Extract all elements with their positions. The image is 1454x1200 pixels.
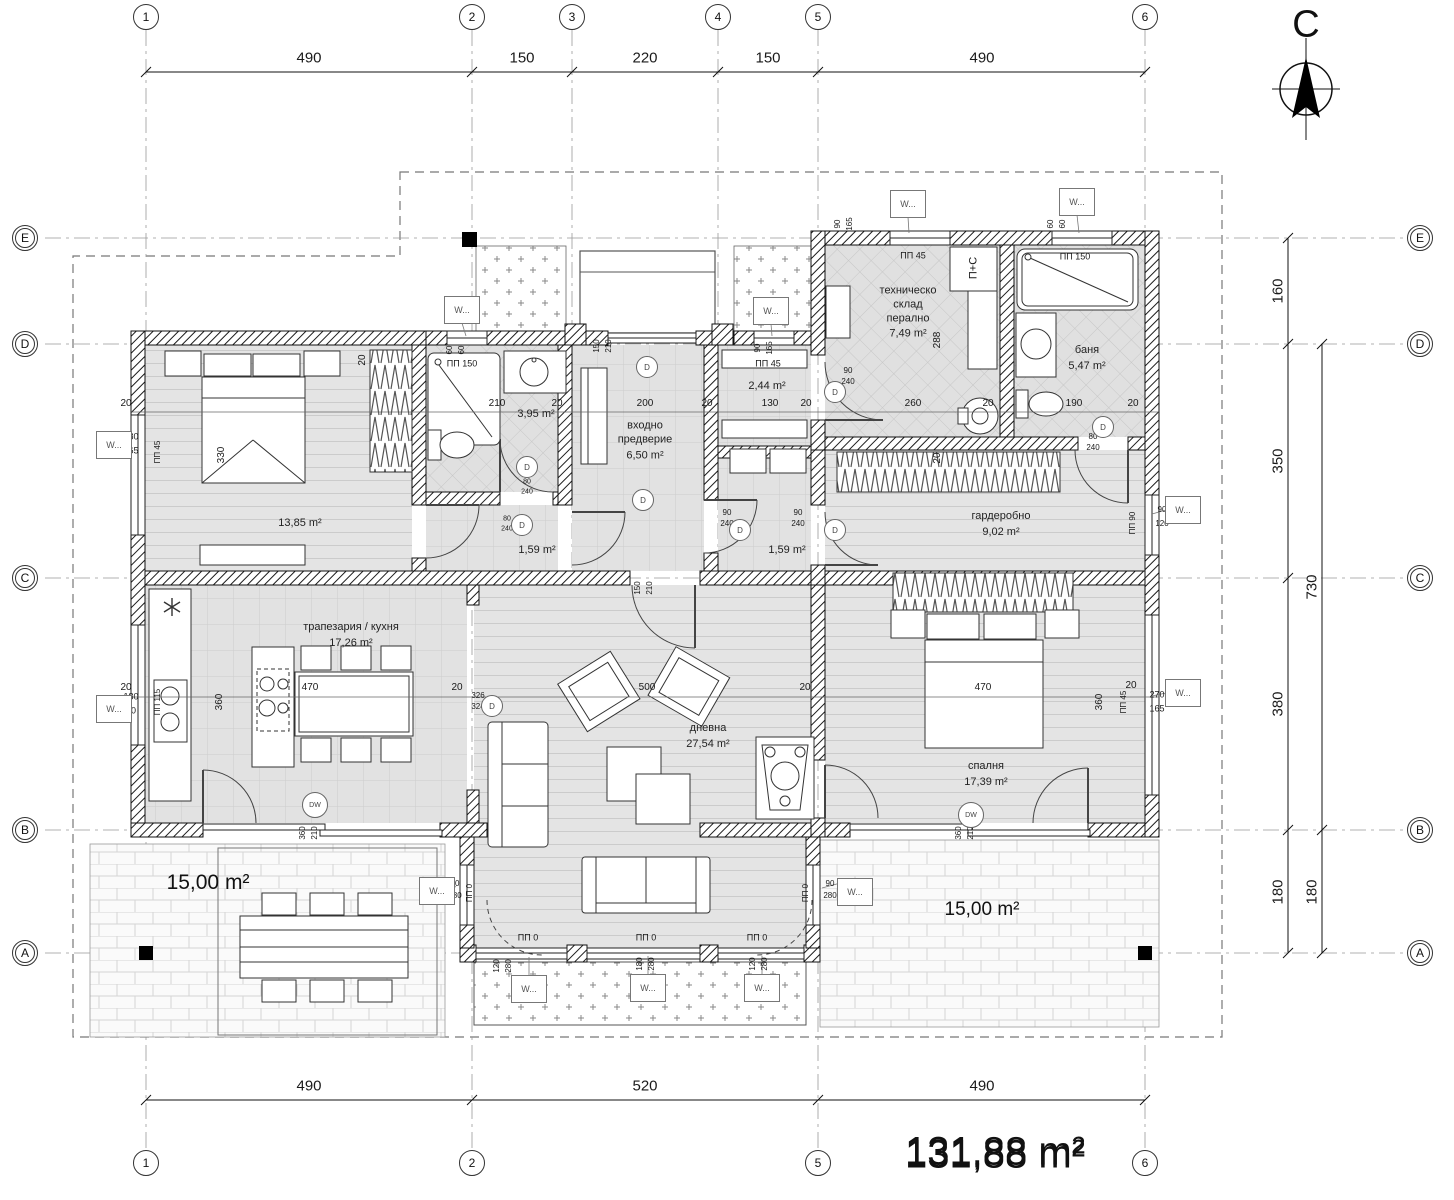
window-tag: W... [419, 877, 455, 905]
grid-bubble-ring [1410, 820, 1430, 840]
sofa-left [488, 722, 548, 847]
dim-label: 490 [969, 51, 994, 66]
grid-bubble-row: D [1407, 331, 1433, 357]
room-area: 1,59 m² [518, 544, 555, 556]
dim-annotation: 130 [762, 399, 779, 409]
grid-bubble-ring [1410, 228, 1430, 248]
dim-annotation: 210 [967, 826, 975, 839]
door-tag: D [824, 519, 846, 541]
room-label: гардеробно9,02 m² [971, 510, 1030, 538]
hall-cabinet [730, 449, 766, 473]
room-label: 2,44 m² [748, 378, 785, 392]
grid-bubble-col: 6 [1132, 1150, 1158, 1176]
door-tag: D [1092, 416, 1114, 438]
grid-bubble-row: E [12, 225, 38, 251]
dim-annotation: 240 [521, 489, 533, 496]
room-name: гардеробно [971, 510, 1030, 524]
dim-annotation: 210 [311, 826, 319, 839]
dim-label: 490 [296, 51, 321, 66]
dim-annotation: 288 [933, 332, 943, 349]
dim-annotation: ПП 90 [1129, 512, 1137, 535]
room-name: техническо склад перално [880, 284, 937, 325]
tech-cabinet [826, 286, 850, 338]
room-name: баня [1068, 344, 1105, 358]
dim-label: 180 [1271, 879, 1286, 904]
dim-annotation: 20 [551, 399, 562, 409]
dim-label: 180 [1305, 879, 1320, 904]
dim-annotation: 330 [217, 447, 227, 464]
dining-table [295, 646, 413, 762]
terrace-table [240, 893, 408, 1002]
sofa-bottom [582, 857, 710, 913]
dim-annotation: 80 [523, 479, 531, 486]
dim-annotation: 90 [826, 880, 835, 888]
dim-annotation: ПП 150 [1060, 253, 1090, 262]
dim-annotation: 210 [605, 339, 613, 352]
dim-annotation: ПП 0 [636, 934, 656, 943]
window-tag: W... [837, 878, 873, 906]
dim-annotation: 20 [800, 399, 811, 409]
door-tag: D [729, 519, 751, 541]
dim-annotation: 360 [215, 694, 225, 711]
floor-plan-canvas: С 131,88 m² 1122345566EEDDCCBBAA49015022… [0, 0, 1454, 1200]
room-name: трапезария / кухня [303, 621, 399, 635]
dim-annotation: 60 [458, 346, 466, 355]
dim-annotation: 120 [749, 957, 757, 970]
dim-annotation: 260 [905, 399, 922, 409]
room-label: трапезария / кухня17,26 m² [303, 621, 399, 649]
door-tag: D [516, 456, 538, 478]
room-area: 17,26 m² [303, 637, 399, 649]
grid-bubble-row: B [12, 817, 38, 843]
dim-annotation: 20 [120, 399, 131, 409]
dim-annotation: 20 [120, 683, 131, 693]
grid-bubble-ring [15, 228, 35, 248]
dim-annotation: 20 [451, 683, 462, 693]
dim-annotation: 60 [446, 346, 454, 355]
dim-annotation: ПП 45 [755, 360, 780, 369]
dim-annotation: 190 [1066, 399, 1083, 409]
room-label: входно предверие6,50 m² [618, 419, 673, 461]
window-tag: W... [444, 296, 480, 324]
window-tag: W... [96, 695, 132, 723]
grid-bubble-ring [1410, 943, 1430, 963]
dim-annotation: 165 [766, 341, 774, 354]
toilet-shower-room [428, 430, 474, 460]
dim-annotation: 360 [955, 826, 963, 839]
room-name: спалня [964, 760, 1007, 774]
dim-annotation: 60 [1047, 220, 1055, 229]
door-tag: DW [302, 792, 328, 818]
wardrobe-rack-bedroom-top [370, 350, 412, 472]
grid-bubble-row: A [12, 940, 38, 966]
dim-annotation: 90 [723, 509, 732, 517]
window-tag: W... [890, 190, 926, 218]
door-tag: DW [958, 802, 984, 828]
grid-bubble-ring [1410, 334, 1430, 354]
dim-label: 150 [755, 51, 780, 66]
dim-annotation: 280 [761, 957, 769, 970]
dim-annotation: ПП 150 [447, 360, 477, 369]
room-label: баня5,47 m² [1068, 344, 1105, 372]
dim-label: 520 [632, 1079, 657, 1094]
dim-annotation: 470 [302, 683, 319, 693]
dim-annotation: 240 [791, 520, 804, 528]
dim-annotation: 20 [1127, 399, 1138, 409]
room-label: техническо склад перално7,49 m² [880, 284, 937, 339]
dim-annotation: П+С [969, 257, 980, 279]
toilet-bath [1016, 390, 1063, 418]
dim-annotation: 210 [489, 399, 506, 409]
grid-bubble-ring [15, 568, 35, 588]
fireplace [756, 737, 814, 819]
room-area: 1,59 m² [768, 544, 805, 556]
dim-annotation: 60 [1059, 220, 1067, 229]
grid-bubble-col: 1 [133, 1150, 159, 1176]
grid-bubble-col: 5 [805, 4, 831, 30]
dim-annotation: 150 [593, 339, 601, 352]
plan-drawing [0, 0, 1454, 1200]
grid-bubble-row: B [1407, 817, 1433, 843]
wardrobe-rack-bedroom [893, 573, 1073, 612]
dim-annotation: 80 [503, 516, 511, 523]
dim-label: 490 [296, 1079, 321, 1094]
grid-bubble-col: 6 [1132, 4, 1158, 30]
door-tag: D [481, 695, 503, 717]
window-tag: W... [1165, 679, 1201, 707]
room-area: 17,39 m² [964, 776, 1007, 788]
grid-bubble-col: 3 [559, 4, 585, 30]
door-tag: D [511, 514, 533, 536]
room-label: 1,59 m² [768, 542, 805, 556]
room-area: 2,44 m² [748, 380, 785, 392]
dim-annotation: 150 [634, 581, 642, 594]
kitchen-island [252, 647, 294, 767]
dim-annotation: 280 [505, 959, 513, 972]
dim-annotation: 90 [834, 220, 842, 229]
area-label: 15,00 m² [945, 899, 1020, 921]
room-name: дневна [686, 722, 729, 736]
dim-annotation: 120 [493, 959, 501, 972]
dim-annotation: ПП 45 [1120, 691, 1128, 714]
dim-annotation: 20 [358, 354, 368, 365]
room-area: 7,49 m² [880, 328, 937, 340]
door-tag: D [636, 356, 658, 378]
dim-label: 490 [969, 1079, 994, 1094]
dim-annotation: 280 [648, 957, 656, 970]
grid-bubble-col: 4 [705, 4, 731, 30]
grid-bubble-row: D [12, 331, 38, 357]
grid-bubble-col: 5 [805, 1150, 831, 1176]
dim-annotation: ПП 115 [154, 689, 162, 715]
dim-annotation: 90 [794, 509, 803, 517]
dim-annotation: 180 [636, 957, 644, 970]
dim-label: 730 [1305, 574, 1320, 599]
closet-shelf [722, 420, 807, 438]
room-name: входно предверие [618, 419, 673, 447]
hall-closet [581, 368, 607, 464]
dim-annotation: 210 [646, 581, 654, 594]
dim-annotation: ПП 0 [802, 884, 810, 902]
dim-label: 350 [1271, 448, 1286, 473]
dim-annotation: 360 [299, 826, 307, 839]
window-tag: W... [96, 431, 132, 459]
grid-bubble-ring [15, 334, 35, 354]
area-label: 131,88 m² [905, 1133, 1085, 1178]
window-tag: W... [630, 974, 666, 1002]
room-area: 9,02 m² [971, 526, 1030, 538]
window-tag: W... [511, 975, 547, 1003]
grid-bubble-col: 1 [133, 4, 159, 30]
door-tag: D [632, 489, 654, 511]
room-label: 1,59 m² [518, 542, 555, 556]
wardrobe-rack [837, 452, 1060, 492]
dim-annotation: 360 [1095, 694, 1105, 711]
grid-bubble-ring [15, 820, 35, 840]
dim-annotation: 20 [701, 399, 712, 409]
room-area: 5,47 m² [1068, 360, 1105, 372]
grid-bubble-col: 2 [459, 1150, 485, 1176]
window-tag: W... [753, 297, 789, 325]
dim-annotation: 470 [975, 683, 992, 693]
dim-annotation: 90 [754, 344, 762, 353]
dim-annotation: 90 [844, 367, 853, 375]
room-area: 3,95 m² [517, 408, 554, 420]
dim-annotation: ПП 45 [900, 252, 925, 261]
grid-bubble-row: C [12, 565, 38, 591]
dim-label: 380 [1271, 691, 1286, 716]
dim-annotation: 500 [639, 683, 656, 693]
grid-bubble-col: 2 [459, 4, 485, 30]
dim-annotation: 270 [1149, 691, 1164, 700]
grid-bubble-row: C [1407, 565, 1433, 591]
room-label: 13,85 m² [278, 515, 321, 529]
grid-bubble-ring [1410, 568, 1430, 588]
dim-annotation: ПП 0 [747, 934, 767, 943]
door-tag: D [824, 381, 846, 403]
room-area: 13,85 m² [278, 517, 321, 529]
dim-annotation: 20 [982, 399, 993, 409]
dim-annotation: 165 [1149, 705, 1164, 714]
grid-bubble-row: E [1407, 225, 1433, 251]
dim-label: 150 [509, 51, 534, 66]
room-label: спалня17,39 m² [964, 760, 1007, 788]
dim-annotation: 200 [637, 399, 654, 409]
grid-bubble-ring [15, 943, 35, 963]
window-tag: W... [744, 974, 780, 1002]
grid-bubble-row: A [1407, 940, 1433, 966]
dim-annotation: 240 [1086, 444, 1099, 452]
dim-annotation: ПП 0 [518, 934, 538, 943]
dim-annotation: ПП 45 [154, 441, 162, 464]
room-area: 27,54 m² [686, 738, 729, 750]
dim-annotation: ПП 0 [466, 884, 474, 902]
dim-annotation: 20 [933, 452, 943, 463]
room-label: дневна27,54 m² [686, 722, 729, 750]
sink-shower-room [504, 351, 566, 393]
coffee-table [636, 774, 690, 824]
hall-cabinet [770, 449, 806, 473]
room-label: 3,95 m² [517, 406, 554, 420]
dim-label: 220 [632, 51, 657, 66]
window-tag: W... [1059, 188, 1095, 216]
sink-bath [1016, 313, 1056, 377]
dim-annotation: 280 [823, 892, 836, 900]
dim-annotation: 165 [846, 217, 854, 230]
dim-annotation: 20 [799, 683, 810, 693]
dim-label: 160 [1271, 278, 1286, 303]
north-arrow-icon [1272, 38, 1340, 140]
north-label: С [1292, 4, 1319, 47]
window-tag: W... [1165, 496, 1201, 524]
room-area: 6,50 m² [618, 449, 673, 461]
area-label: 15,00 m² [167, 871, 250, 895]
